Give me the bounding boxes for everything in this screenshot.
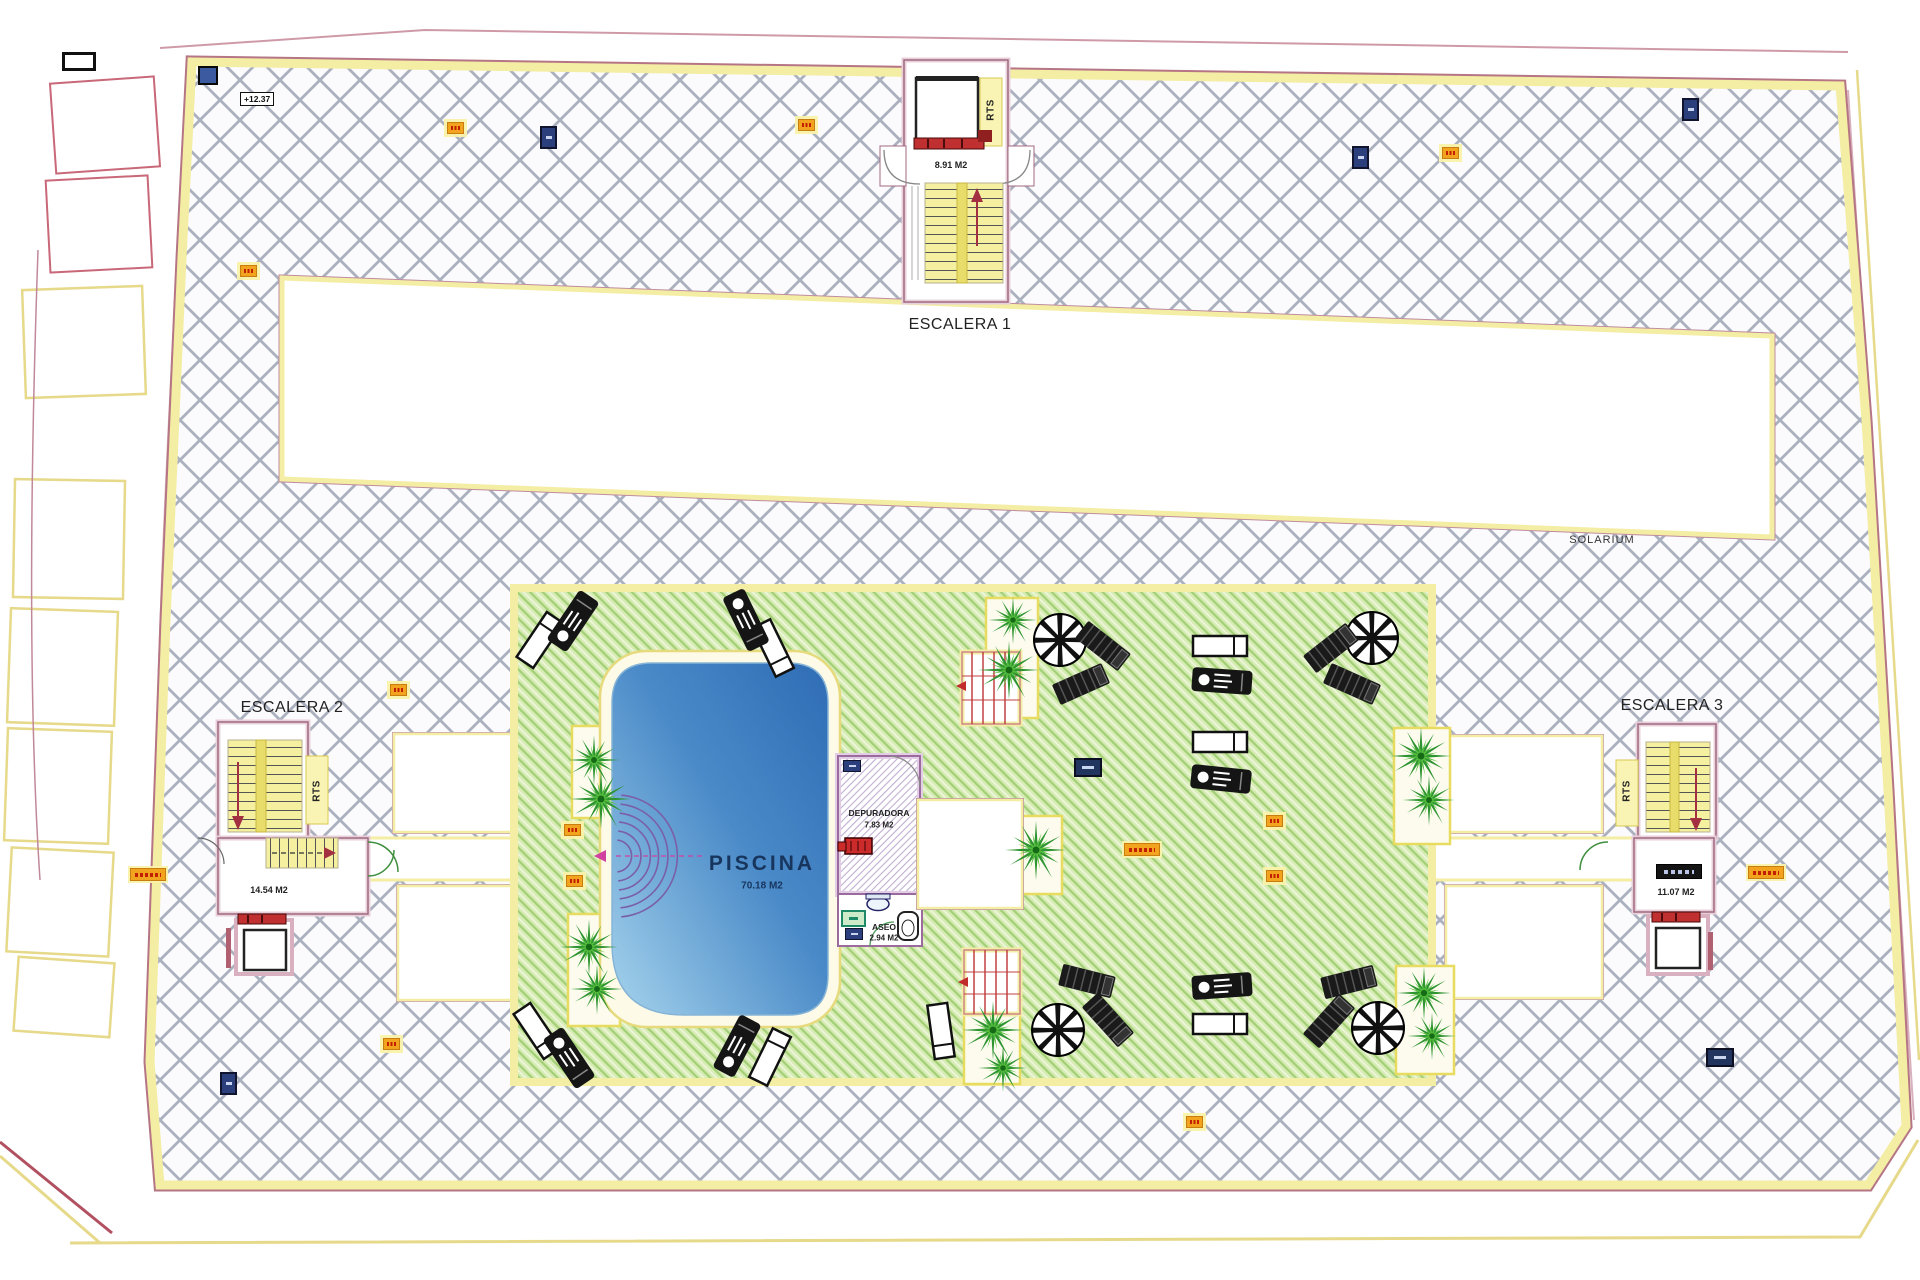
swimming-pool [594, 651, 840, 1027]
aseo-label: ASEO [872, 922, 896, 932]
utility-marker-orange [1186, 1116, 1203, 1128]
rts-label-2: RTS [312, 780, 323, 802]
depuradora-area-label: 7.83 M2 [865, 821, 894, 830]
utility-marker-orange [447, 122, 464, 134]
elevator-1-shaft [916, 78, 978, 140]
utility-marker-orange [1266, 870, 1283, 882]
aseo-area-label: 2.94 M2 [870, 934, 899, 943]
floor-plan-drawing [0, 0, 1920, 1280]
level-marker: +12.37 [240, 92, 274, 106]
vent-marker-navy-horizontal [1706, 1048, 1734, 1067]
elevator-1-door [914, 138, 984, 149]
room-tag-dark [1656, 864, 1702, 879]
tag-marker-navy [845, 928, 863, 940]
utility-marker-orange [240, 265, 257, 277]
utility-marker-orange [1442, 147, 1459, 159]
pump-valve-icon [838, 842, 846, 851]
drain-icon [198, 66, 218, 85]
vent-marker-navy [540, 126, 557, 149]
utility-marker-orange-wide [1124, 843, 1160, 856]
vent-marker-navy [1352, 146, 1369, 169]
elevator-2-shaft [244, 930, 286, 970]
tag-marker-navy [843, 760, 861, 772]
escalera3-label: ESCALERA 3 [1621, 697, 1724, 715]
utility-room [918, 800, 1022, 908]
elevator-3-shaft [1656, 928, 1700, 968]
roof-access-icon [62, 52, 96, 71]
utility-marker-orange [1266, 815, 1283, 827]
pool-label: PISCINA [709, 852, 815, 876]
escalera2-label: ESCALERA 2 [241, 699, 344, 717]
tag-marker-green [841, 910, 866, 927]
rts-label-3: RTS [1622, 780, 1633, 802]
escalera2-area-label: 14.54 M2 [250, 885, 288, 895]
vent-marker-navy [220, 1072, 237, 1095]
escalera3-area-label: 11.07 M2 [1657, 887, 1694, 897]
escalera1-label: ESCALERA 1 [909, 316, 1012, 334]
elevator-1-motor [978, 130, 992, 142]
vent-marker-navy [1682, 98, 1699, 121]
utility-marker-orange [383, 1038, 400, 1050]
utility-marker-orange-wide [1748, 866, 1784, 879]
escalera1-area-label: 8.91 M2 [935, 160, 968, 170]
rts-label-1: RTS [986, 99, 997, 121]
utility-marker-orange [566, 875, 583, 887]
floor-plan-canvas: ESCALERA 1 ESCALERA 2 ESCALERA 3 SOLARIU… [0, 0, 1920, 1280]
utility-marker-orange [564, 824, 581, 836]
left-balcony-strip [4, 76, 160, 1037]
solarium-label: SOLARIUM [1569, 534, 1634, 546]
utility-marker-orange [390, 684, 407, 696]
utility-marker-orange-wide [130, 868, 166, 881]
utility-marker-orange [798, 119, 815, 131]
depuradora-label: DEPURADORA [849, 808, 910, 818]
pool-area-label: 70.18 M2 [741, 881, 783, 892]
pergola-grid-bottom [958, 950, 1020, 1014]
vent-marker-navy-horizontal [1074, 758, 1102, 777]
